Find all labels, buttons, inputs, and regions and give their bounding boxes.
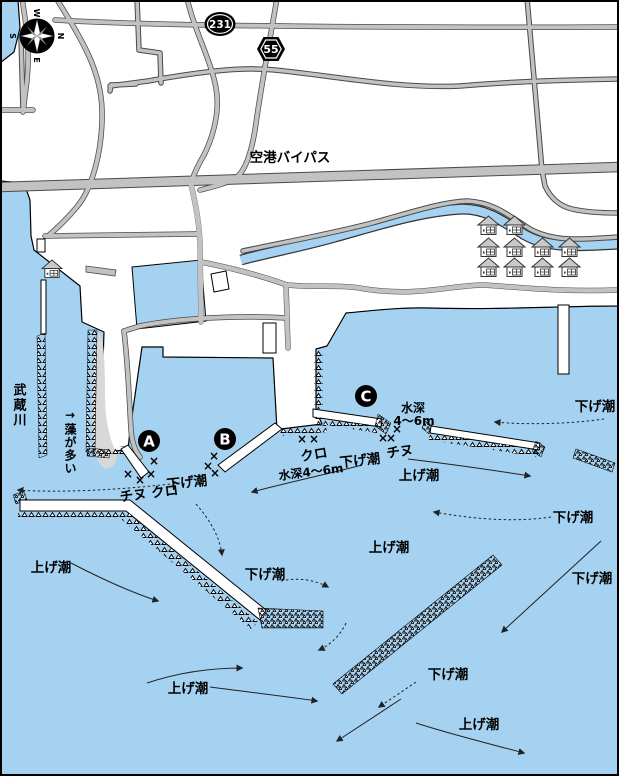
point-marker-a: A	[138, 430, 160, 452]
spot-c-depth-line1: 水深	[401, 400, 425, 415]
tide-label-flood: 上げ潮	[459, 716, 500, 733]
route-badge-231: 231	[205, 12, 236, 36]
x-marker: ×	[386, 431, 396, 445]
bypass-label: 空港バイパス	[250, 149, 331, 166]
x-marker: ×	[309, 432, 319, 446]
compass-n: N	[56, 33, 65, 40]
harbor-map-svg: × × × × × × × × × × × × A B C 231 55	[0, 0, 619, 776]
river-mouth-pier	[37, 239, 45, 252]
building-1	[211, 271, 229, 292]
compass-w: W	[32, 9, 41, 18]
point-label-c: C	[360, 388, 371, 406]
building-2	[263, 323, 276, 353]
x-marker: ×	[149, 454, 159, 468]
spot-c-depth-line2: 4～6m	[393, 414, 434, 428]
x-marker: ×	[297, 432, 307, 446]
seaweed-note: →藻が多い	[63, 408, 77, 475]
pier-c-east-hatch	[314, 350, 323, 409]
point-marker-c: C	[355, 385, 377, 407]
tide-label-ebb: 下げ潮	[245, 566, 286, 583]
tide-label-ebb: 下げ潮	[428, 666, 469, 683]
x-marker: ×	[135, 473, 145, 487]
tide-label-ebb: 下げ潮	[575, 398, 616, 415]
x-marker: ×	[210, 466, 220, 480]
tide-label-flood: 上げ潮	[399, 467, 440, 484]
breakwater-river-west	[37, 333, 47, 458]
x-marker: ×	[123, 467, 133, 481]
river-label: 武蔵川	[11, 382, 28, 428]
breakwater-river-east	[86, 330, 97, 452]
harbor-map: × × × × × × × × × × × × A B C 231 55	[0, 0, 619, 776]
point-label-b: B	[219, 431, 230, 449]
route-55-label: 55	[263, 43, 278, 56]
tide-label-flood: 上げ潮	[31, 559, 72, 576]
compass-e: E	[32, 57, 41, 62]
point-label-a: A	[143, 433, 155, 451]
tide-label-ebb: 下げ潮	[572, 570, 613, 587]
compass-s: S	[8, 33, 17, 39]
breakwater-south-end-block	[258, 608, 323, 628]
pier-east	[558, 305, 569, 374]
tide-label-flood: 上げ潮	[168, 680, 209, 697]
tide-label-ebb: 下げ潮	[553, 509, 594, 526]
point-marker-b: B	[214, 428, 236, 450]
x-marker: ×	[146, 467, 156, 481]
seawall-west	[41, 280, 46, 334]
route-231-label: 231	[209, 19, 231, 31]
tide-label-flood: 上げ潮	[369, 539, 410, 556]
